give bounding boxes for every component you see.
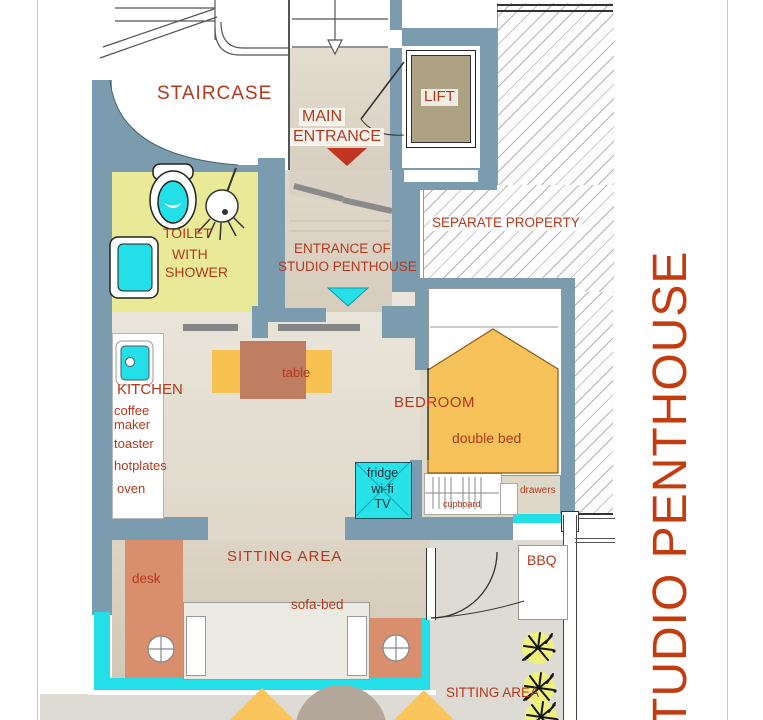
window-bedroom xyxy=(513,514,563,523)
window-sill xyxy=(88,690,436,695)
boundary-line xyxy=(575,542,615,543)
wall-bedroom-left xyxy=(415,292,428,370)
wall-sitting-top-right xyxy=(345,517,513,540)
cupboard-side xyxy=(500,483,518,515)
main-entrance-label-line1: MAIN xyxy=(299,108,345,126)
fridge-label-line1: fridge xyxy=(355,466,410,482)
double-bed-label: double bed xyxy=(452,431,521,446)
wall-partition xyxy=(252,306,268,338)
wall-sitting-top-left xyxy=(92,517,208,540)
cupboard-label: cupboard xyxy=(443,500,481,510)
fridge-label: fridge wi-fi TV xyxy=(355,466,410,513)
drawers-label: drawers xyxy=(520,485,556,496)
appliance-label-oven: oven xyxy=(117,482,145,496)
boundary-line xyxy=(497,10,613,12)
sofa-bed-label: sofa-bed xyxy=(291,598,344,613)
floor-plan-page: STUDIO PENTHOUSE STAIRCASE MAIN ENTRANCE… xyxy=(0,0,763,720)
main-entrance-label-line2: ENTRANCE xyxy=(290,128,384,146)
wall-top xyxy=(390,0,402,30)
separate-property-hatch-mid xyxy=(423,185,614,292)
outdoor-sitting-area-label: SITTING AREA xyxy=(446,686,539,701)
toilet-label-line3: SHOWER xyxy=(165,265,228,280)
doorway-floor xyxy=(208,517,345,540)
sofa-armrest xyxy=(347,616,367,676)
toilet-label-line1: TOILET xyxy=(163,226,212,241)
appliance-label-coffee-maker: coffee maker xyxy=(114,404,166,431)
bedroom-label: BEDROOM xyxy=(394,395,475,412)
boundary-line xyxy=(575,513,613,515)
desk xyxy=(125,540,183,678)
page-border-right xyxy=(727,0,728,720)
side-table xyxy=(368,618,422,678)
double-bed xyxy=(428,288,562,476)
separate-property-hatch-right xyxy=(575,292,613,515)
appliance-label-hotplates: hotplates xyxy=(114,459,167,473)
entrance-hall-label-line1: ENTRANCE OF xyxy=(294,242,391,257)
desk-label: desk xyxy=(132,572,161,587)
staircase-label: STAIRCASE xyxy=(157,84,272,105)
sitting-area-label: SITTING AREA xyxy=(227,549,342,566)
lift-label: LIFT xyxy=(421,89,458,106)
toilet-room-floor xyxy=(112,172,258,312)
boundary-line xyxy=(575,538,615,539)
studio-penthouse-title: STUDIO PENTHOUSE xyxy=(644,251,697,720)
wall-corridor-right xyxy=(390,48,402,170)
sofa-bed xyxy=(183,602,370,680)
sliding-door-track xyxy=(278,324,360,331)
wall-lift-top xyxy=(402,28,497,46)
separate-property-label: SEPARATE PROPERTY xyxy=(430,216,582,231)
wall-bedroom-right xyxy=(560,292,575,520)
boundary-line xyxy=(497,4,613,6)
fridge-label-line2: wi-fi xyxy=(355,482,410,498)
wall-toilet-hall xyxy=(258,158,285,312)
terrace-door-leaf xyxy=(426,548,436,620)
wall-hall-right xyxy=(392,190,420,292)
window-left xyxy=(94,612,110,688)
bbq-label: BBQ xyxy=(527,553,557,568)
sofa-armrest xyxy=(186,616,206,676)
entrance-hall-label-line2: STUDIO PENTHOUSE xyxy=(278,260,417,275)
sliding-door-track xyxy=(183,324,238,331)
boundary-line xyxy=(575,518,615,519)
appliance-label-toaster: toaster xyxy=(114,437,154,451)
wall-notch xyxy=(404,170,478,182)
kitchen-label: KITCHEN xyxy=(117,382,183,399)
toilet-label-line2: WITH xyxy=(172,247,208,262)
page-border-left xyxy=(37,0,38,720)
wall-partition xyxy=(268,308,326,322)
separate-property-hatch-top xyxy=(497,3,614,185)
table-label: table xyxy=(282,366,310,380)
fridge-label-line3: TV xyxy=(355,497,410,513)
